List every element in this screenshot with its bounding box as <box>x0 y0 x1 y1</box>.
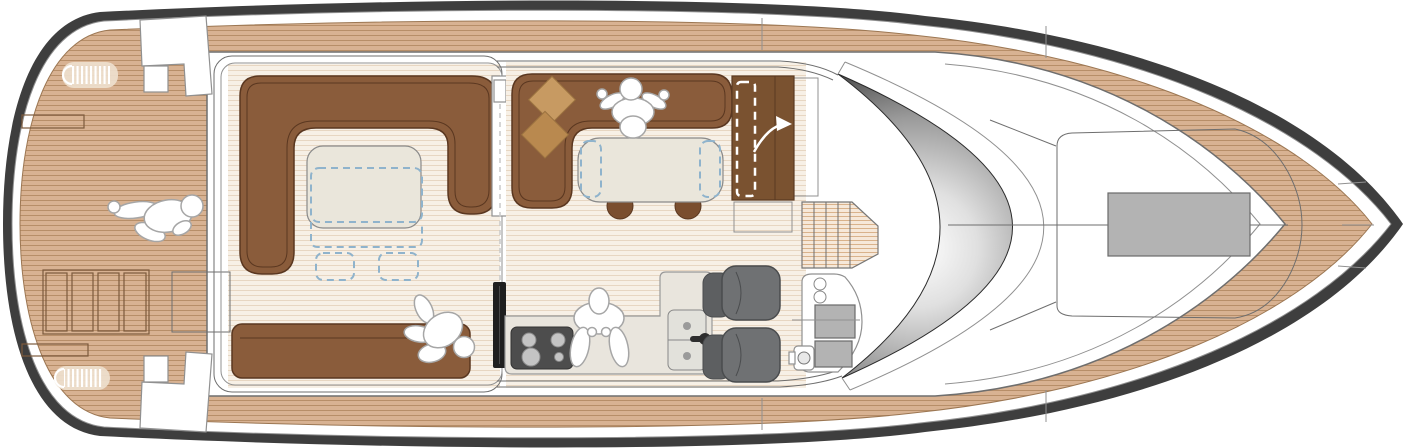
sliding-door-glass <box>494 80 506 102</box>
cockpit-table <box>307 146 421 228</box>
bow-hatch <box>1108 193 1250 256</box>
helm-gauge-1 <box>814 278 826 290</box>
helm-seat-1 <box>722 266 780 320</box>
galley-stove <box>511 327 573 369</box>
helm-display-1 <box>815 305 855 338</box>
helm-seat-2 <box>722 328 780 382</box>
port-side-door <box>732 76 794 200</box>
yacht-deck-plan <box>0 0 1405 448</box>
helm-gauge-2 <box>814 291 826 303</box>
cleat-starboard <box>54 366 110 390</box>
deck-plan-svg <box>0 0 1405 448</box>
cleat-port <box>62 62 118 88</box>
helm-display-2 <box>815 341 852 367</box>
